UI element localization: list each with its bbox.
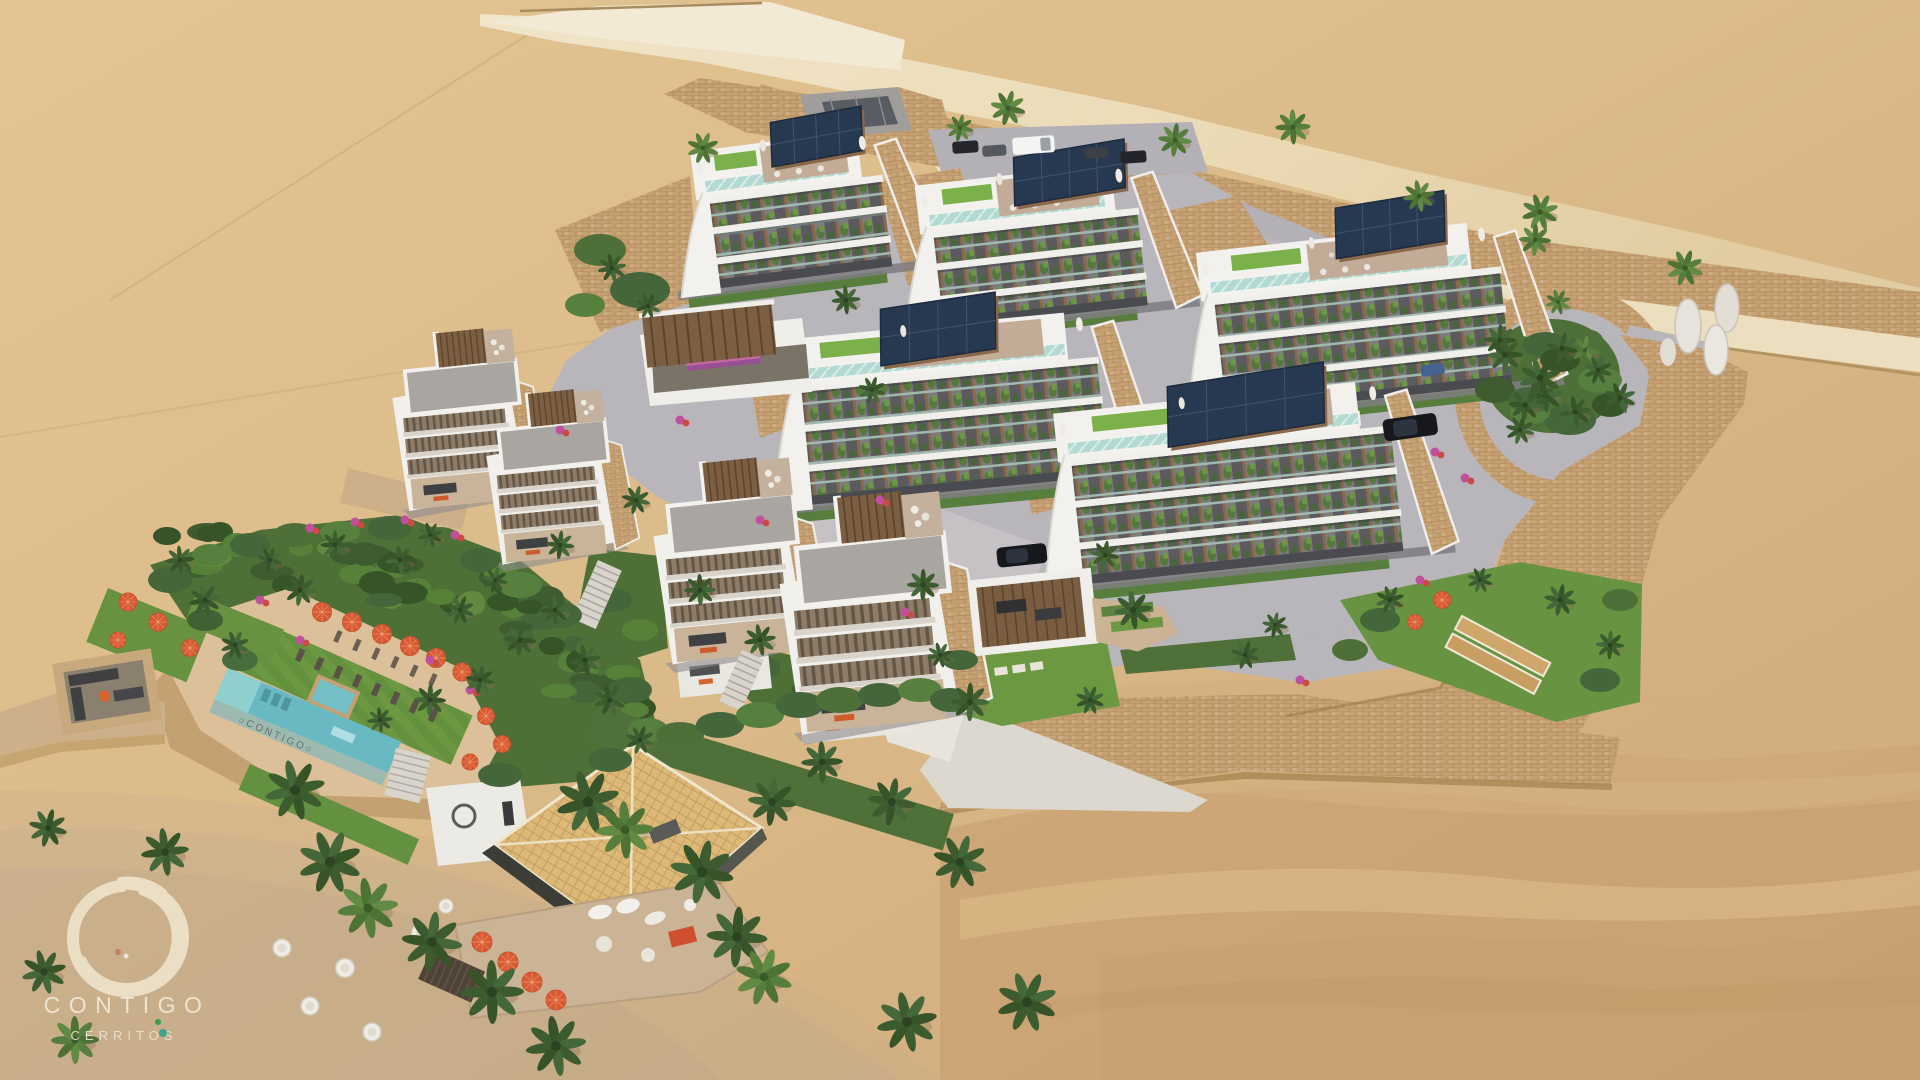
svg-text:CONTIGO: CONTIGO [44, 992, 211, 1018]
